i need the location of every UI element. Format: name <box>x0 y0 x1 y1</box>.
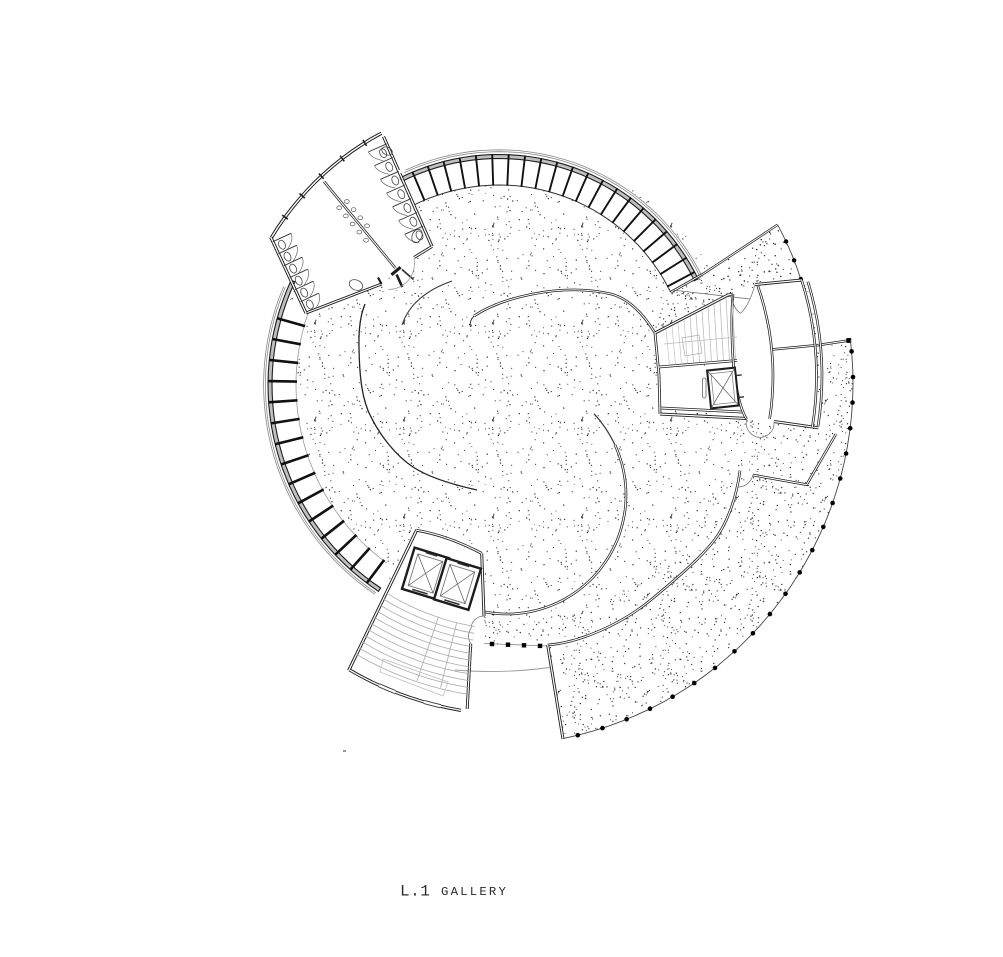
svg-text:L.1: L.1 <box>400 883 430 901</box>
svg-text:GALLERY: GALLERY <box>441 885 508 899</box>
